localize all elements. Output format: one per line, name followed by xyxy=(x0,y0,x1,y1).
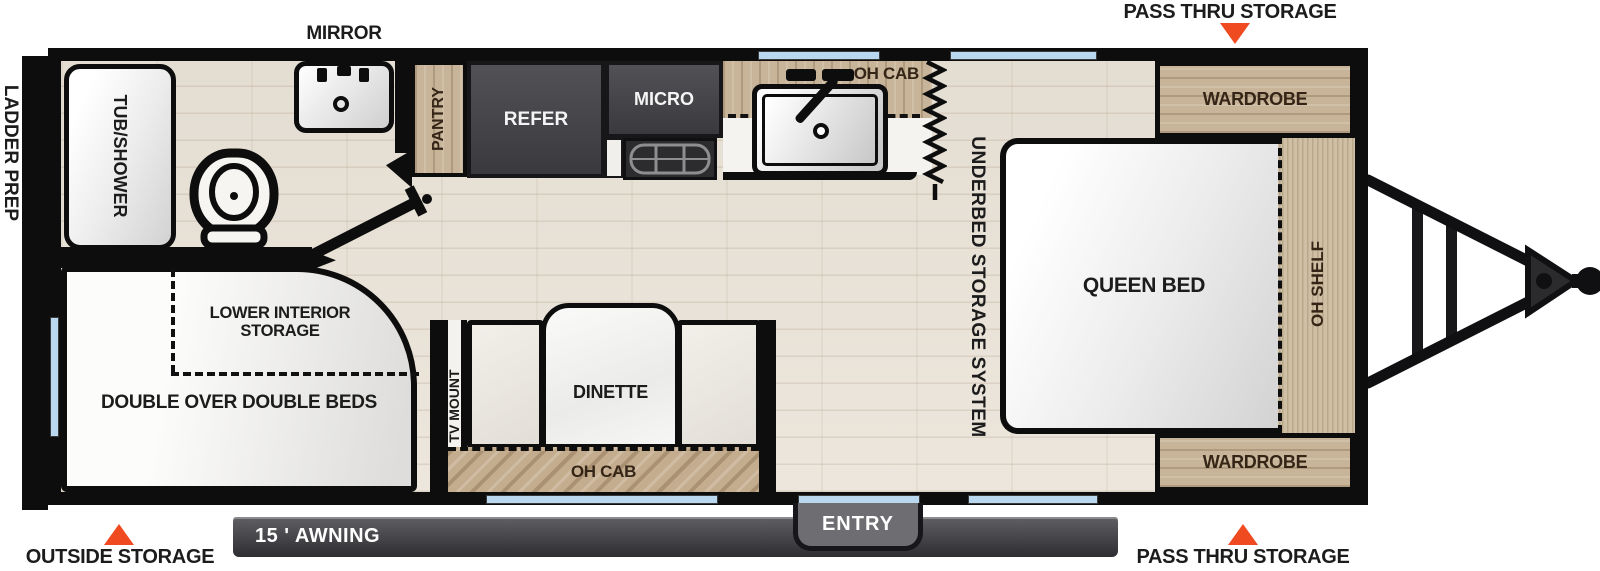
wall-tick-icon xyxy=(46,113,56,125)
pass-thru-storage-top-arrow-icon xyxy=(1220,23,1250,44)
dinette-label: DINETTE xyxy=(546,382,675,403)
window xyxy=(50,317,59,437)
faucet-spout-icon xyxy=(337,66,351,76)
ladder-prep-label: LADDER PREP xyxy=(0,58,21,248)
faucet-handle-icon xyxy=(317,68,327,82)
dinette-oh-cab-label: OH CAB xyxy=(571,462,636,482)
door-knob-icon xyxy=(422,194,432,204)
oh-shelf: OH SHELF xyxy=(1278,136,1355,433)
dinette-bench xyxy=(677,320,761,449)
faucet-bar-icon xyxy=(786,69,816,81)
lower-interior-storage-label: LOWER INTERIOR STORAGE xyxy=(188,304,372,340)
stove-cooktop-icon xyxy=(623,138,717,180)
hitch-a-frame-icon xyxy=(1368,150,1600,410)
window xyxy=(758,51,880,60)
counter-sliver xyxy=(605,138,623,178)
drain-icon xyxy=(813,123,829,139)
privacy-curtain-zigzag-icon xyxy=(921,58,947,204)
awning-bar: 15 ' AWNING xyxy=(233,517,1118,557)
microwave-label: MICRO xyxy=(634,89,694,110)
mirror-label: MIRROR xyxy=(296,23,392,45)
window xyxy=(950,51,1097,60)
rear-bumper xyxy=(22,56,48,510)
refrigerator-label: REFER xyxy=(504,109,568,131)
outside-storage-arrow-icon xyxy=(104,524,134,545)
window xyxy=(968,495,1098,504)
refrigerator: REFER xyxy=(467,61,605,178)
drain-icon xyxy=(333,96,349,112)
queen-bed: QUEEN BED xyxy=(1000,138,1282,434)
floorplan-canvas: PASS THRU STORAGE MIRROR LADDER PREP TUB… xyxy=(0,0,1600,571)
underbed-storage-label: UNDERBED STORAGE SYSTEM xyxy=(967,143,987,431)
wardrobe-top-label: WARDROBE xyxy=(1203,89,1308,110)
faucet-handle-icon xyxy=(359,68,369,82)
window xyxy=(486,495,718,504)
tub-shower: TUB/SHOWER xyxy=(64,64,176,250)
wall-tick-icon xyxy=(46,443,56,455)
pantry-cabinet: PANTRY xyxy=(411,61,467,177)
entry-door-tab: ENTRY xyxy=(793,503,923,551)
lower-storage-dash-line xyxy=(171,372,419,376)
toilet-icon xyxy=(186,148,282,254)
oh-shelf-label: OH SHELF xyxy=(1308,224,1328,344)
faucet-bar-icon xyxy=(822,69,854,81)
wardrobe-bottom: WARDROBE xyxy=(1155,433,1355,492)
double-beds-label: DOUBLE OVER DOUBLE BEDS xyxy=(67,392,411,414)
pass-thru-storage-top-label: PASS THRU STORAGE xyxy=(1120,1,1340,24)
double-over-double-beds: DOUBLE OVER DOUBLE BEDS xyxy=(61,266,417,492)
pass-thru-storage-bottom-arrow-icon xyxy=(1228,524,1258,545)
dinette-bench xyxy=(467,320,544,449)
dinette-table: DINETTE xyxy=(541,303,680,449)
partition-wall xyxy=(759,320,776,492)
bathroom-wall xyxy=(395,61,411,153)
queen-bed-label: QUEEN BED xyxy=(1006,144,1282,428)
outside-storage-label: OUTSIDE STORAGE xyxy=(10,546,230,569)
kitchen-oh-cab-label: OH CAB xyxy=(843,64,919,84)
entry-label: ENTRY xyxy=(822,513,894,536)
dinette-overhead-cabinet: OH CAB xyxy=(448,447,759,492)
bathroom-wall xyxy=(61,247,312,268)
microwave: MICRO xyxy=(605,61,723,138)
pantry-label: PANTRY xyxy=(429,69,449,169)
awning-label: 15 ' AWNING xyxy=(255,525,380,548)
wardrobe-top: WARDROBE xyxy=(1155,61,1355,138)
bathroom-sink-icon xyxy=(294,61,394,133)
wardrobe-bottom-label: WARDROBE xyxy=(1203,452,1308,473)
lower-storage-dash-line xyxy=(171,269,175,373)
pass-thru-storage-bottom-label: PASS THRU STORAGE xyxy=(1133,546,1353,569)
tub-shower-label: TUB/SHOWER xyxy=(110,70,130,242)
